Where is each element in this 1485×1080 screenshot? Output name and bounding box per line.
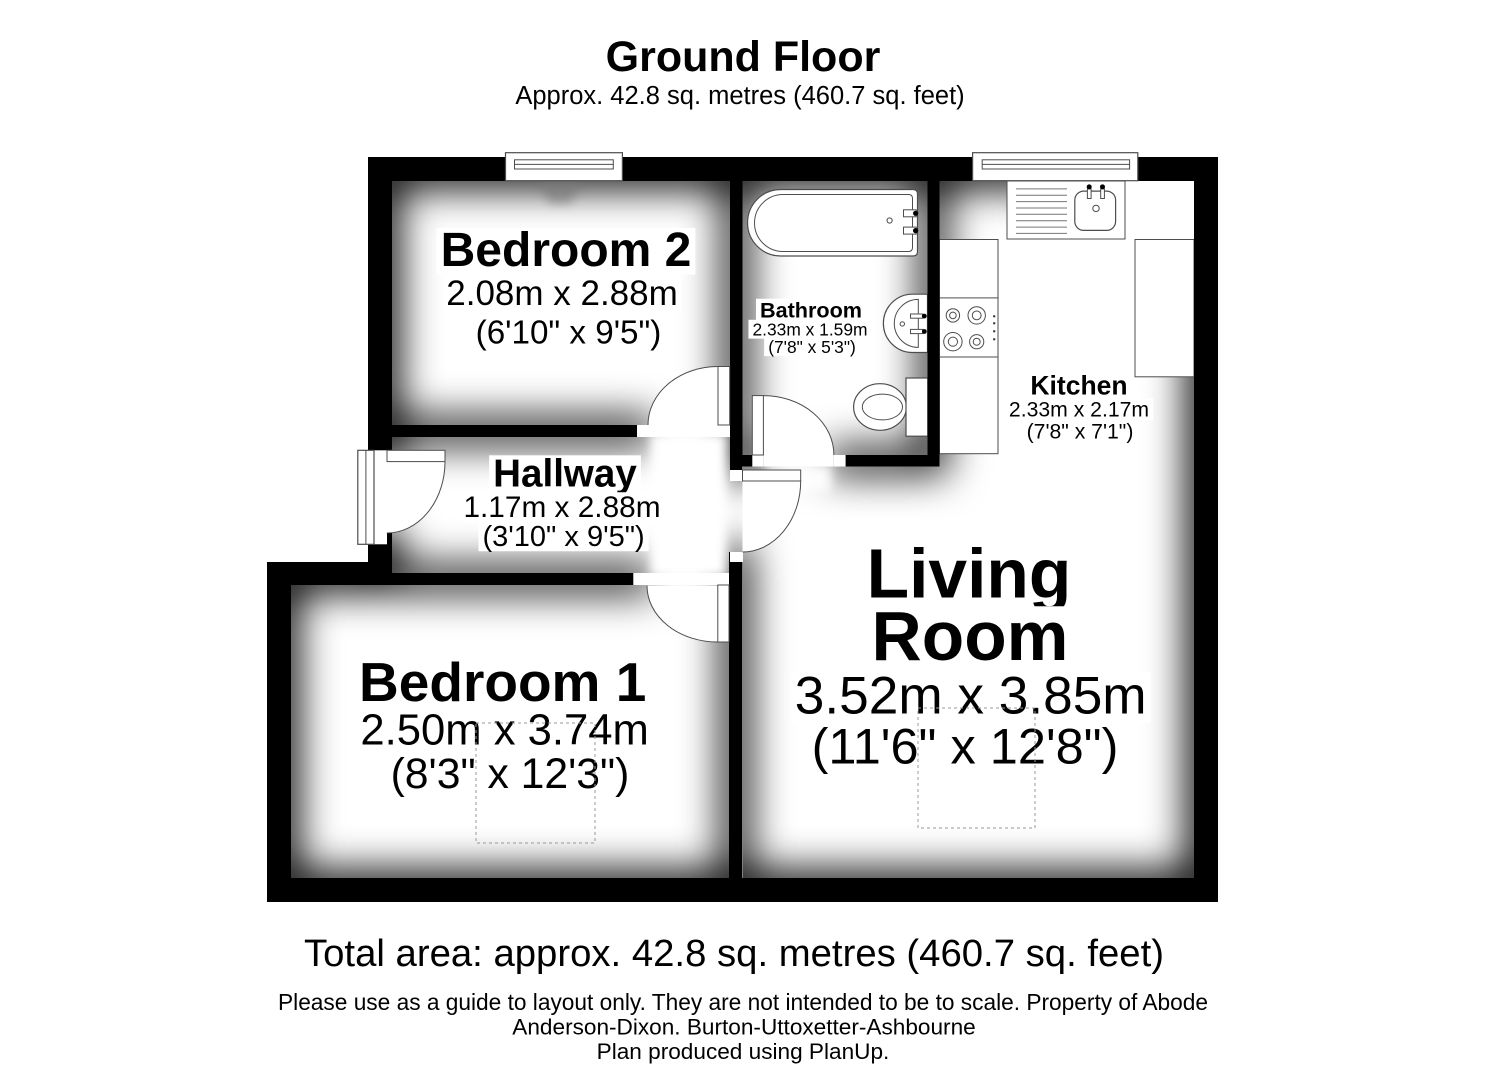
svg-text:Plan produced using PlanUp.: Plan produced using PlanUp. [597, 1039, 890, 1064]
svg-text:(8'3" x 12'3"): (8'3" x 12'3") [391, 750, 630, 798]
svg-text:Room: Room [872, 597, 1069, 675]
svg-text:(7'8" x 7'1"): (7'8" x 7'1") [1027, 421, 1134, 444]
svg-text:Bedroom 1: Bedroom 1 [359, 651, 646, 713]
svg-text:(11'6" x 12'8"): (11'6" x 12'8") [812, 718, 1119, 775]
svg-text:Anderson-Dixon. Burton-Uttoxet: Anderson-Dixon. Burton-Uttoxetter-Ashbou… [512, 1015, 975, 1040]
svg-text:2.08m x 2.88m: 2.08m x 2.88m [446, 274, 678, 313]
svg-text:(7'8" x 5'3"): (7'8" x 5'3") [768, 337, 856, 357]
svg-text:Please use as a guide to layou: Please use as a guide to layout only. Th… [278, 989, 1208, 1015]
svg-text:Ground Floor: Ground Floor [606, 33, 881, 81]
svg-text:1.17m x 2.88m: 1.17m x 2.88m [463, 491, 660, 524]
svg-text:Hallway: Hallway [493, 453, 637, 496]
svg-text:Bedroom 2: Bedroom 2 [441, 224, 692, 277]
svg-text:Kitchen: Kitchen [1030, 371, 1127, 401]
svg-text:2.33m x 2.17m: 2.33m x 2.17m [1009, 399, 1149, 422]
svg-text:2.50m x 3.74m: 2.50m x 3.74m [360, 707, 648, 755]
svg-text:Approx. 42.8 sq. metres (460.7: Approx. 42.8 sq. metres (460.7 sq. feet) [515, 82, 964, 110]
svg-text:(3'10" x 9'5"): (3'10" x 9'5") [482, 521, 644, 553]
svg-text:Total area: approx. 42.8 sq. m: Total area: approx. 42.8 sq. metres (460… [304, 932, 1164, 975]
svg-text:(6'10" x 9'5"): (6'10" x 9'5") [476, 315, 662, 352]
